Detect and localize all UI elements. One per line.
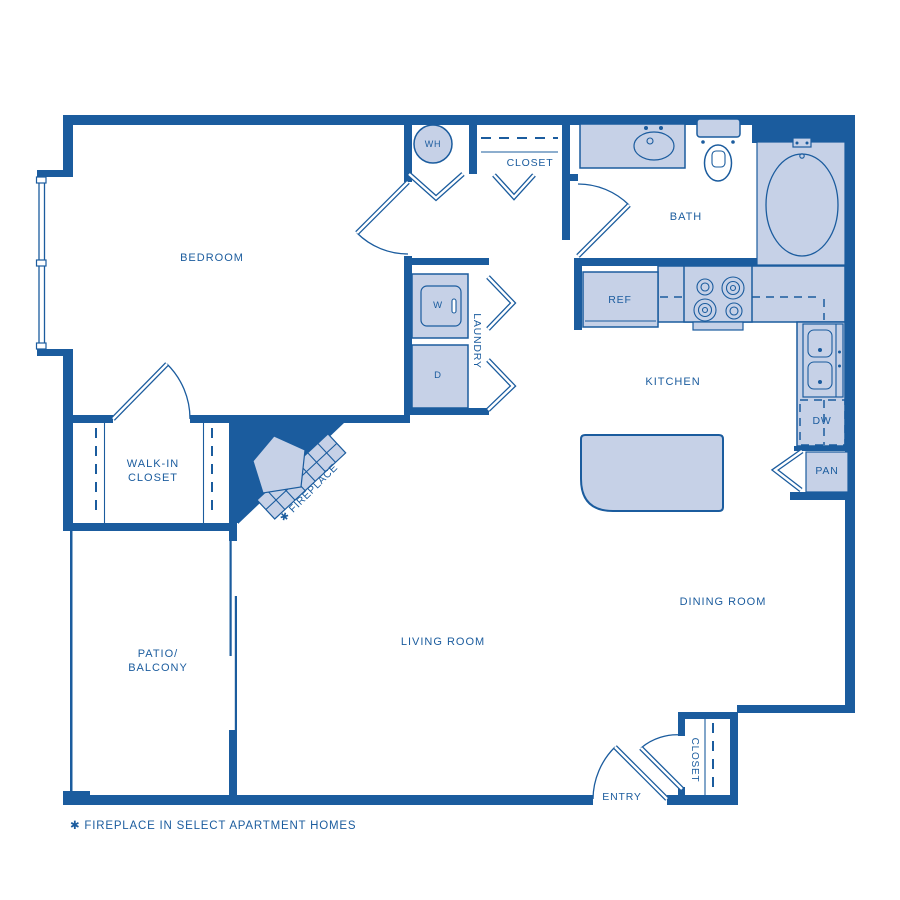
wall-segment	[63, 795, 593, 805]
stove-lip	[693, 322, 743, 330]
bifold-door	[488, 360, 513, 410]
window-mullion	[37, 343, 47, 349]
wall-segment	[730, 713, 738, 803]
hall-closet-marks	[481, 138, 558, 152]
wall-segment	[70, 530, 73, 796]
wall-segment	[790, 492, 855, 500]
room-label-dining-room: DINING ROOM	[680, 595, 767, 609]
door-leaf	[113, 364, 167, 419]
room-label-kitchen: KITCHEN	[645, 375, 700, 389]
stove-fixture	[684, 266, 752, 330]
faucet-dot	[644, 126, 648, 130]
tub-faucet-knob	[806, 142, 809, 145]
door-leaf	[357, 182, 408, 233]
bifold-door	[488, 277, 513, 329]
refrigerator-label: REF	[608, 293, 631, 307]
sliding-door-panel	[235, 596, 237, 732]
room-label-patio-balcony: PATIO/ BALCONY	[128, 647, 188, 675]
bifold-door	[488, 277, 513, 329]
wall-segment	[565, 174, 578, 181]
bathtub-fixture	[757, 138, 845, 265]
wall-segment	[574, 258, 758, 266]
wall-segment	[404, 256, 412, 415]
wall-segment	[229, 531, 237, 541]
patio-line2: BALCONY	[128, 661, 188, 675]
kitchen-island	[581, 435, 723, 511]
faucet-dot	[838, 351, 841, 354]
wall-segment	[737, 705, 855, 713]
window-mullion	[37, 260, 47, 266]
tub-faucet-knob	[796, 142, 799, 145]
door-arc	[578, 184, 629, 205]
toilet-bolt	[731, 140, 735, 144]
walk-in-closet-line1: WALK-IN	[127, 457, 179, 471]
room-label-bedroom: BEDROOM	[180, 251, 244, 265]
door-arc	[167, 364, 190, 419]
wall-segment	[845, 115, 855, 713]
water-heater-label: WH	[425, 137, 442, 151]
wall-segment	[574, 258, 582, 330]
walk-in-closet-line2: CLOSET	[127, 471, 179, 485]
door-arc	[357, 233, 408, 254]
room-label-walk-in-closet: WALK-IN CLOSET	[127, 457, 179, 485]
dishwasher-label: DW	[812, 414, 831, 428]
tub-basin	[766, 154, 838, 256]
floor-plan: BEDROOM WALK-IN CLOSET PATIO/ BALCONY LI…	[0, 0, 900, 900]
faucet-dot	[838, 365, 841, 368]
footnote: ✱ FIREPLACE IN SELECT APARTMENT HOMES	[70, 819, 356, 833]
toilet-tank	[697, 119, 740, 137]
sink-drain	[818, 348, 822, 352]
wall-segment	[229, 730, 237, 796]
wall-segment	[667, 795, 738, 805]
room-label-laundry: LAUNDRY	[470, 313, 484, 369]
wall-segment	[63, 791, 90, 805]
wall-segment	[404, 258, 489, 265]
entry-closet-marks	[705, 719, 713, 795]
bifold-door	[775, 451, 802, 490]
wall-segment	[63, 523, 237, 531]
toilet-fixture	[697, 119, 740, 181]
dryer-label: D	[434, 369, 442, 383]
window-mullion	[37, 177, 47, 183]
wall-segment	[469, 125, 477, 174]
washer-label: W	[433, 299, 443, 313]
toilet-bowl	[705, 145, 732, 181]
sliding-door-panel	[230, 540, 232, 656]
pantry-label: PAN	[815, 464, 838, 478]
hall-closet-label: CLOSET	[507, 156, 554, 170]
wall-segment	[678, 712, 685, 736]
entry-closet-label: CLOSET	[687, 738, 701, 783]
door-leaf	[578, 205, 629, 256]
bath-sink	[634, 132, 674, 160]
island-counter	[581, 435, 723, 511]
washer-handle	[452, 299, 456, 313]
bifold-door	[409, 174, 463, 198]
wall-segment	[404, 408, 489, 415]
door-leaf	[641, 748, 682, 789]
bedroom-window	[37, 177, 47, 349]
room-label-bath: BATH	[670, 210, 703, 224]
door-arc	[641, 735, 682, 748]
room-label-living-room: LIVING ROOM	[401, 635, 485, 649]
wall-segment	[37, 170, 73, 177]
toilet-bolt	[701, 140, 705, 144]
bifold-door	[409, 174, 463, 198]
wall-segment	[678, 712, 738, 719]
wall-segment	[63, 352, 73, 530]
wall-segment	[562, 125, 570, 240]
bifold-door	[494, 175, 534, 197]
bath-vanity	[580, 124, 685, 168]
patio-line1: PATIO/	[128, 647, 188, 661]
room-label-entry: ENTRY	[602, 790, 641, 804]
wall-segment	[229, 423, 238, 523]
wall-segment	[190, 415, 410, 423]
wall-segment	[63, 115, 73, 172]
sink-drain	[818, 380, 822, 384]
floor-plan-drawing	[0, 0, 900, 900]
faucet-dot	[659, 126, 663, 130]
wall-segment	[63, 415, 113, 423]
kitchen-sink-fixture	[803, 324, 843, 397]
